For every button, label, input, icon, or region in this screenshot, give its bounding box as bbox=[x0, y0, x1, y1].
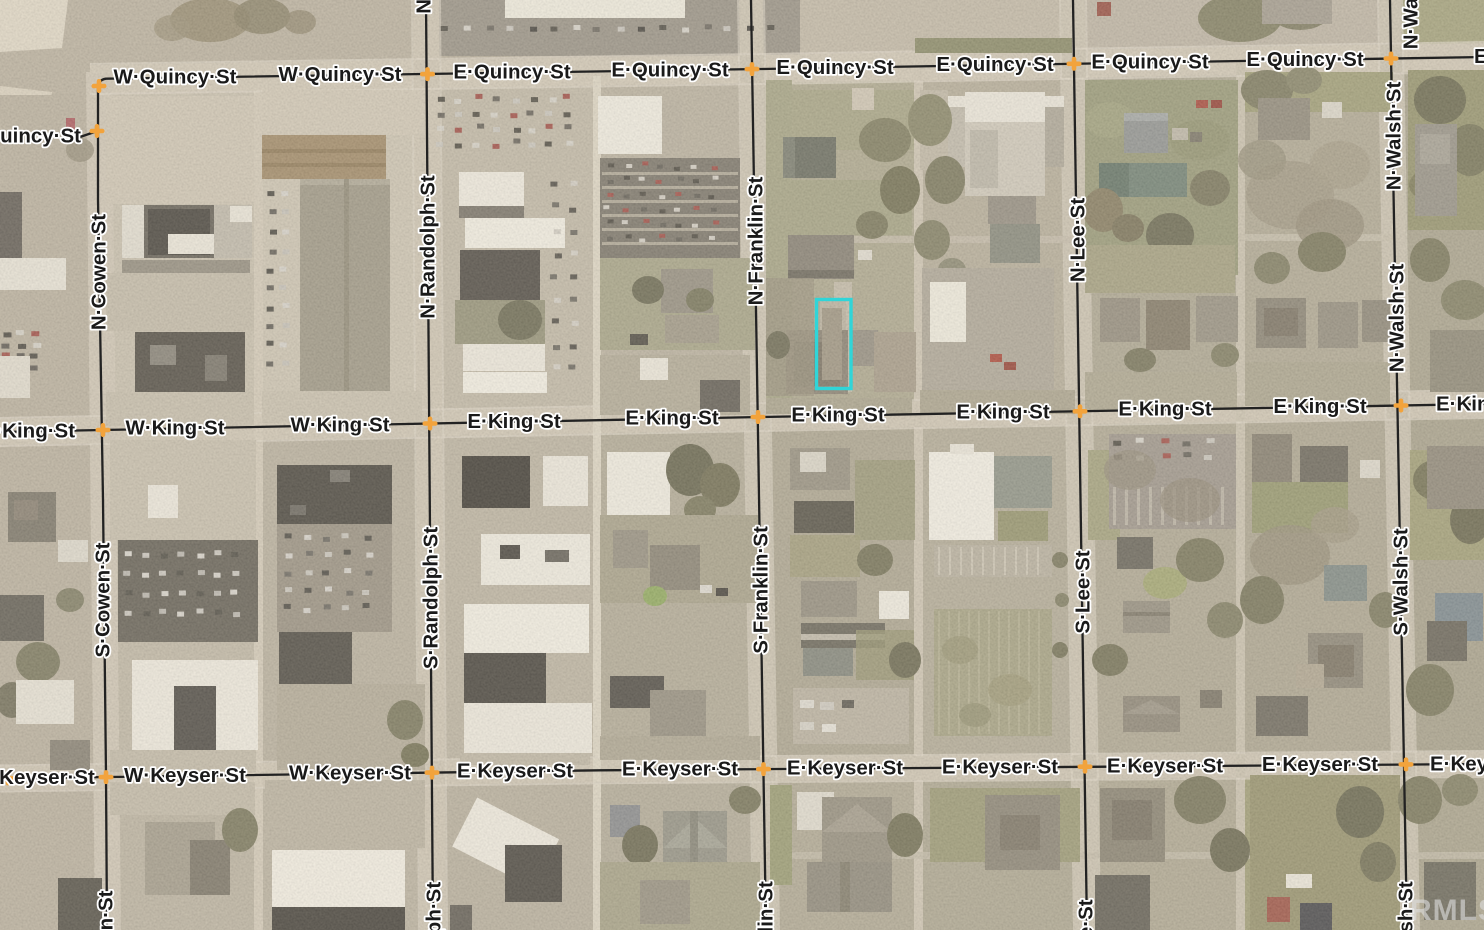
svg-text:E·Quincy·St: E·Quincy·St bbox=[936, 53, 1053, 76]
svg-text:E·Kin: E·Kin bbox=[1436, 393, 1484, 416]
svg-text:E·Keyser·St: E·Keyser·St bbox=[457, 760, 573, 783]
svg-text:S·Cowen·St: S·Cowen·St bbox=[95, 890, 118, 930]
svg-text:N·Walsh·St: N·Walsh·St bbox=[1400, 0, 1423, 49]
svg-text:E·King·St: E·King·St bbox=[956, 401, 1050, 424]
svg-text:S·Lee·St: S·Lee·St bbox=[1075, 899, 1098, 930]
svg-text:W·Quincy·St: W·Quincy·St bbox=[114, 66, 237, 89]
svg-text:W·King·St: W·King·St bbox=[0, 420, 75, 443]
svg-text:N·Walsh·St: N·Walsh·St bbox=[1386, 264, 1409, 373]
svg-text:W·Keyser·St: W·Keyser·St bbox=[124, 764, 246, 787]
svg-text:E·Keys: E·Keys bbox=[1430, 752, 1484, 775]
svg-text:W·Keyser·St: W·Keyser·St bbox=[0, 766, 95, 789]
svg-text:W·Quincy·St: W·Quincy·St bbox=[279, 63, 402, 86]
svg-text:E·King·St: E·King·St bbox=[1273, 395, 1367, 418]
svg-text:E·Quincy·St: E·Quincy·St bbox=[776, 56, 893, 79]
svg-text:E·King·St: E·King·St bbox=[467, 410, 561, 433]
svg-text:E·King·St: E·King·St bbox=[1118, 398, 1212, 421]
svg-text:E·Quincy·St: E·Quincy·St bbox=[611, 58, 728, 81]
svg-text:E·King·St: E·King·St bbox=[791, 404, 885, 427]
svg-text:E·Quincy·St: E·Quincy·St bbox=[1246, 48, 1363, 71]
svg-text:E·Q: E·Q bbox=[1474, 45, 1484, 68]
svg-text:N·Randolph·St: N·Randolph·St bbox=[417, 175, 440, 319]
svg-text:E·Keyser·St: E·Keyser·St bbox=[622, 758, 738, 781]
svg-text:S·Randolph·St: S·Randolph·St bbox=[423, 882, 446, 930]
svg-text:S·Franklin·St: S·Franklin·St bbox=[750, 526, 773, 654]
svg-text:E·Keyser·St: E·Keyser·St bbox=[787, 757, 903, 780]
svg-text:E·Quincy·St: E·Quincy·St bbox=[1091, 51, 1208, 74]
svg-text:E·Quincy·St: E·Quincy·St bbox=[453, 61, 570, 84]
svg-text:N·Lee·St: N·Lee·St bbox=[1067, 198, 1090, 282]
svg-text:E·King·St: E·King·St bbox=[625, 407, 719, 430]
svg-text:S·Walsh·St: S·Walsh·St bbox=[1390, 528, 1413, 636]
svg-text:W·King·St: W·King·St bbox=[290, 413, 389, 436]
svg-text:S·Franklin·St: S·Franklin·St bbox=[755, 881, 778, 930]
svg-text:N·Randolph·St: N·Randolph·St bbox=[413, 0, 436, 14]
svg-text:N·Cowen·St: N·Cowen·St bbox=[88, 214, 111, 330]
svg-text:S·Cowen·St: S·Cowen·St bbox=[92, 542, 115, 657]
svg-text:uincy·St: uincy·St bbox=[0, 125, 81, 148]
svg-text:E·Keyser·St: E·Keyser·St bbox=[1262, 753, 1378, 776]
svg-text:S·Randolph·St: S·Randolph·St bbox=[420, 527, 443, 670]
svg-text:RMLS: RMLS bbox=[1410, 894, 1484, 927]
svg-text:W·Keyser·St: W·Keyser·St bbox=[289, 762, 411, 785]
svg-text:E·Keyser·St: E·Keyser·St bbox=[942, 755, 1058, 778]
svg-text:S·Lee·St: S·Lee·St bbox=[1072, 550, 1095, 633]
svg-text:W·King·St: W·King·St bbox=[125, 417, 224, 440]
svg-text:E·Keyser·St: E·Keyser·St bbox=[1107, 754, 1223, 777]
svg-text:N·Franklin·St: N·Franklin·St bbox=[745, 176, 768, 305]
svg-text:N·Walsh·St: N·Walsh·St bbox=[1383, 82, 1406, 191]
